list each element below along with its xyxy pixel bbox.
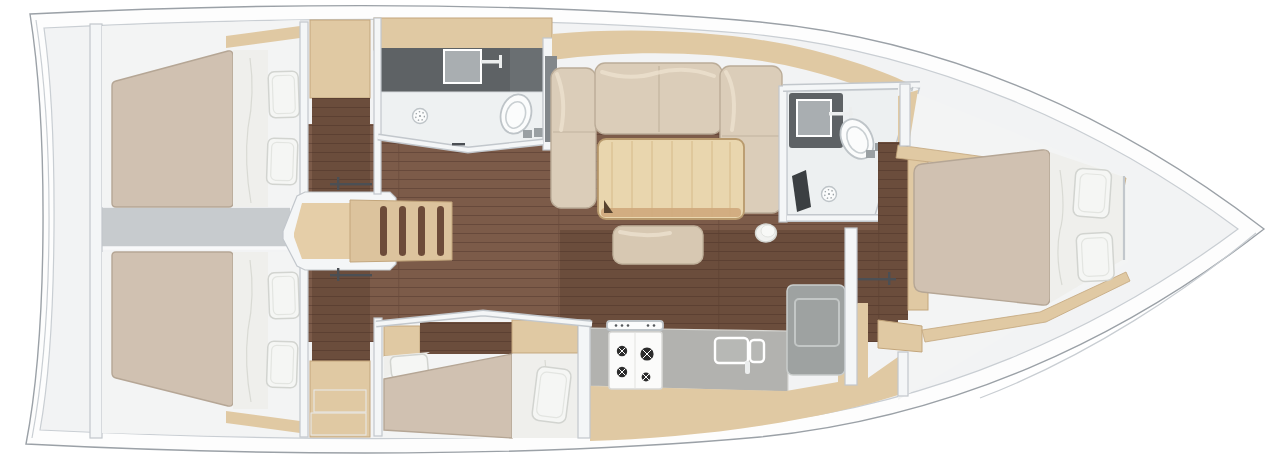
cabin-wall — [578, 320, 590, 438]
engine-compartment — [98, 205, 292, 249]
island-berth-mattress — [914, 150, 1050, 305]
toilet-control — [523, 130, 532, 138]
burner — [617, 346, 627, 356]
sofa-left-seat — [551, 68, 596, 208]
berth-sheet — [233, 50, 268, 207]
yacht-floor-plan — [0, 0, 1280, 459]
step-slot — [399, 206, 406, 256]
pillow — [531, 366, 571, 424]
cabin-wall — [374, 318, 382, 436]
entry-wall — [898, 352, 908, 396]
cabinet — [384, 326, 420, 356]
stern-bulkhead — [90, 24, 102, 438]
head-sink — [444, 50, 481, 83]
wardrobe-starboard — [310, 361, 370, 437]
step-slot — [437, 206, 444, 256]
faucet — [481, 60, 502, 64]
toilet-control — [866, 150, 875, 158]
stool — [756, 224, 777, 242]
cabin-bulkhead — [300, 22, 308, 207]
burner — [617, 367, 627, 377]
entry-wall — [900, 84, 910, 146]
mid-cabin — [374, 312, 592, 438]
pillow — [1073, 168, 1112, 218]
berth-sheet — [233, 252, 268, 409]
floor-plan-canvas — [0, 0, 1280, 459]
shower-drain — [413, 109, 428, 124]
door-handle — [452, 143, 465, 145]
step-seat — [878, 320, 922, 352]
stove — [609, 332, 662, 389]
cabin-bulkhead — [300, 252, 308, 437]
vanity-counter-end — [510, 48, 543, 92]
step-slot — [380, 206, 387, 256]
head-wall — [779, 86, 787, 222]
cabin-door — [845, 228, 857, 385]
head-wall — [374, 18, 381, 194]
table-edge — [601, 208, 741, 217]
wardrobe-port — [310, 20, 370, 98]
burner — [640, 347, 653, 360]
step-slot — [418, 206, 425, 256]
faucet — [745, 361, 750, 374]
saloon-table — [598, 139, 744, 219]
aft-port-cabin — [102, 20, 308, 207]
burner — [642, 373, 651, 382]
head-sink — [797, 100, 831, 136]
engine-hatch — [98, 205, 290, 249]
shower-drain — [822, 187, 837, 202]
aft-starboard-cabin — [102, 252, 308, 437]
fridge — [787, 285, 845, 375]
head-cabinet — [374, 18, 552, 50]
